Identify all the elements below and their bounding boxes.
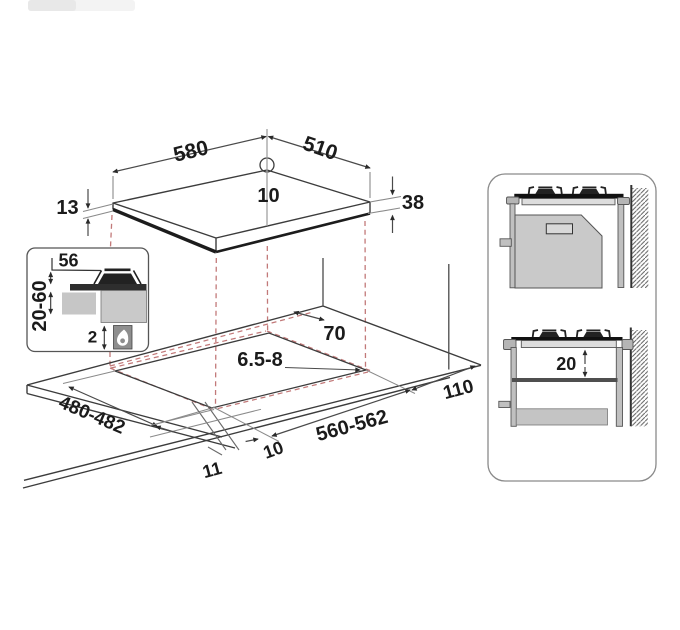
svg-text:480-482: 480-482 (56, 392, 128, 439)
svg-text:110: 110 (441, 376, 476, 404)
svg-text:560-562: 560-562 (314, 406, 391, 446)
svg-text:6.5-8: 6.5-8 (237, 349, 283, 371)
svg-text:2: 2 (88, 328, 97, 347)
svg-text:580: 580 (171, 136, 210, 167)
svg-text:13: 13 (56, 197, 78, 219)
svg-text:56: 56 (58, 251, 78, 271)
svg-text:510: 510 (300, 132, 341, 165)
svg-text:70: 70 (323, 323, 345, 345)
svg-text:10: 10 (261, 437, 287, 463)
svg-text:10: 10 (257, 185, 279, 207)
svg-text:38: 38 (402, 192, 424, 214)
svg-text:20-60: 20-60 (29, 280, 51, 331)
svg-text:11: 11 (200, 458, 224, 482)
svg-text:20: 20 (556, 354, 576, 374)
